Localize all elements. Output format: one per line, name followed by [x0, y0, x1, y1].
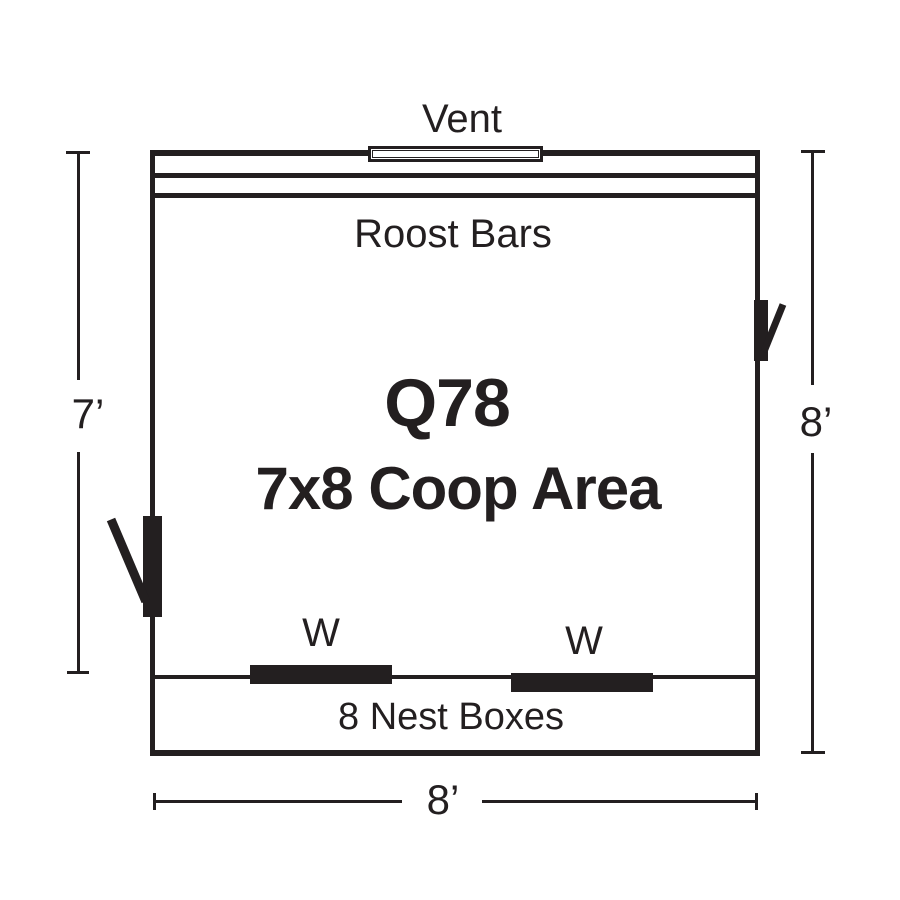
- dim-right-upper-segment: [811, 151, 814, 385]
- nest-box-divider-wall: [155, 675, 755, 679]
- vent-label: Vent: [422, 99, 502, 139]
- dim-left-upper-segment: [77, 151, 80, 380]
- roost-bar-line-2: [155, 193, 755, 198]
- dim-bottom-left-segment: [155, 800, 402, 803]
- dim-right-lower-segment: [811, 453, 814, 753]
- dim-right-label: 8’: [800, 401, 833, 443]
- vent-opening-inner-line: [372, 150, 539, 158]
- dim-left-label: 7’: [72, 393, 105, 435]
- dim-bottom-right-cap: [755, 793, 758, 810]
- dim-left-bottom-cap: [67, 671, 89, 674]
- left-wall: [150, 150, 155, 756]
- dim-bottom-right-segment: [482, 800, 757, 803]
- dim-bottom-label: 8’: [427, 779, 460, 821]
- vent-opening: [368, 146, 543, 162]
- bottom-wall: [150, 750, 760, 756]
- window-right: [511, 673, 653, 692]
- nest-boxes-label: 8 Nest Boxes: [338, 698, 564, 736]
- coop-area-label: 7x8 Coop Area: [256, 459, 661, 519]
- roost-bar-line-1: [155, 173, 755, 178]
- window-left-label: W: [302, 613, 340, 653]
- window-right-label: W: [565, 621, 603, 661]
- right-wall: [755, 150, 760, 756]
- dim-right-bottom-cap: [801, 751, 825, 754]
- roost-bars-label: Roost Bars: [354, 214, 552, 254]
- coop-floor-plan: Vent Roost Bars Q78 7x8 Coop Area W W 8 …: [0, 0, 900, 900]
- window-left: [250, 665, 392, 684]
- human-door-leaf: [143, 516, 162, 617]
- model-label: Q78: [384, 369, 510, 437]
- dim-left-lower-segment: [77, 452, 80, 673]
